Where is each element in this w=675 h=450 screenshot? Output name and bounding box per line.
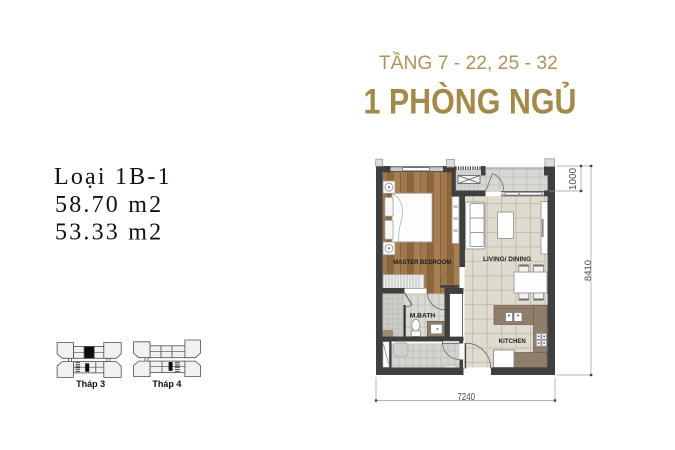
svg-text:Tháp 4: Tháp 4 (152, 379, 181, 389)
svg-text:Tháp 3: Tháp 3 (76, 379, 105, 389)
svg-text:7240: 7240 (457, 392, 475, 403)
svg-text:1000: 1000 (568, 167, 579, 190)
svg-text:58.70 m2: 58.70 m2 (55, 192, 163, 218)
svg-text:8410: 8410 (583, 260, 594, 281)
svg-text:1 PHÒNG NGỦ: 1 PHÒNG NGỦ (364, 81, 577, 122)
svg-text:Loại 1B-1: Loại 1B-1 (54, 164, 172, 190)
svg-text:TẦNG 7 - 22, 25 - 32: TẦNG 7 - 22, 25 - 32 (379, 52, 558, 74)
svg-text:53.33 m2: 53.33 m2 (55, 220, 163, 246)
svg-text:LIVING/ DINING: LIVING/ DINING (483, 256, 531, 263)
svg-text:KITCHEN: KITCHEN (499, 338, 526, 345)
svg-text:M.BATH: M.BATH (410, 313, 436, 319)
svg-text:MASTER BEDROOM: MASTER BEDROOM (393, 259, 451, 266)
